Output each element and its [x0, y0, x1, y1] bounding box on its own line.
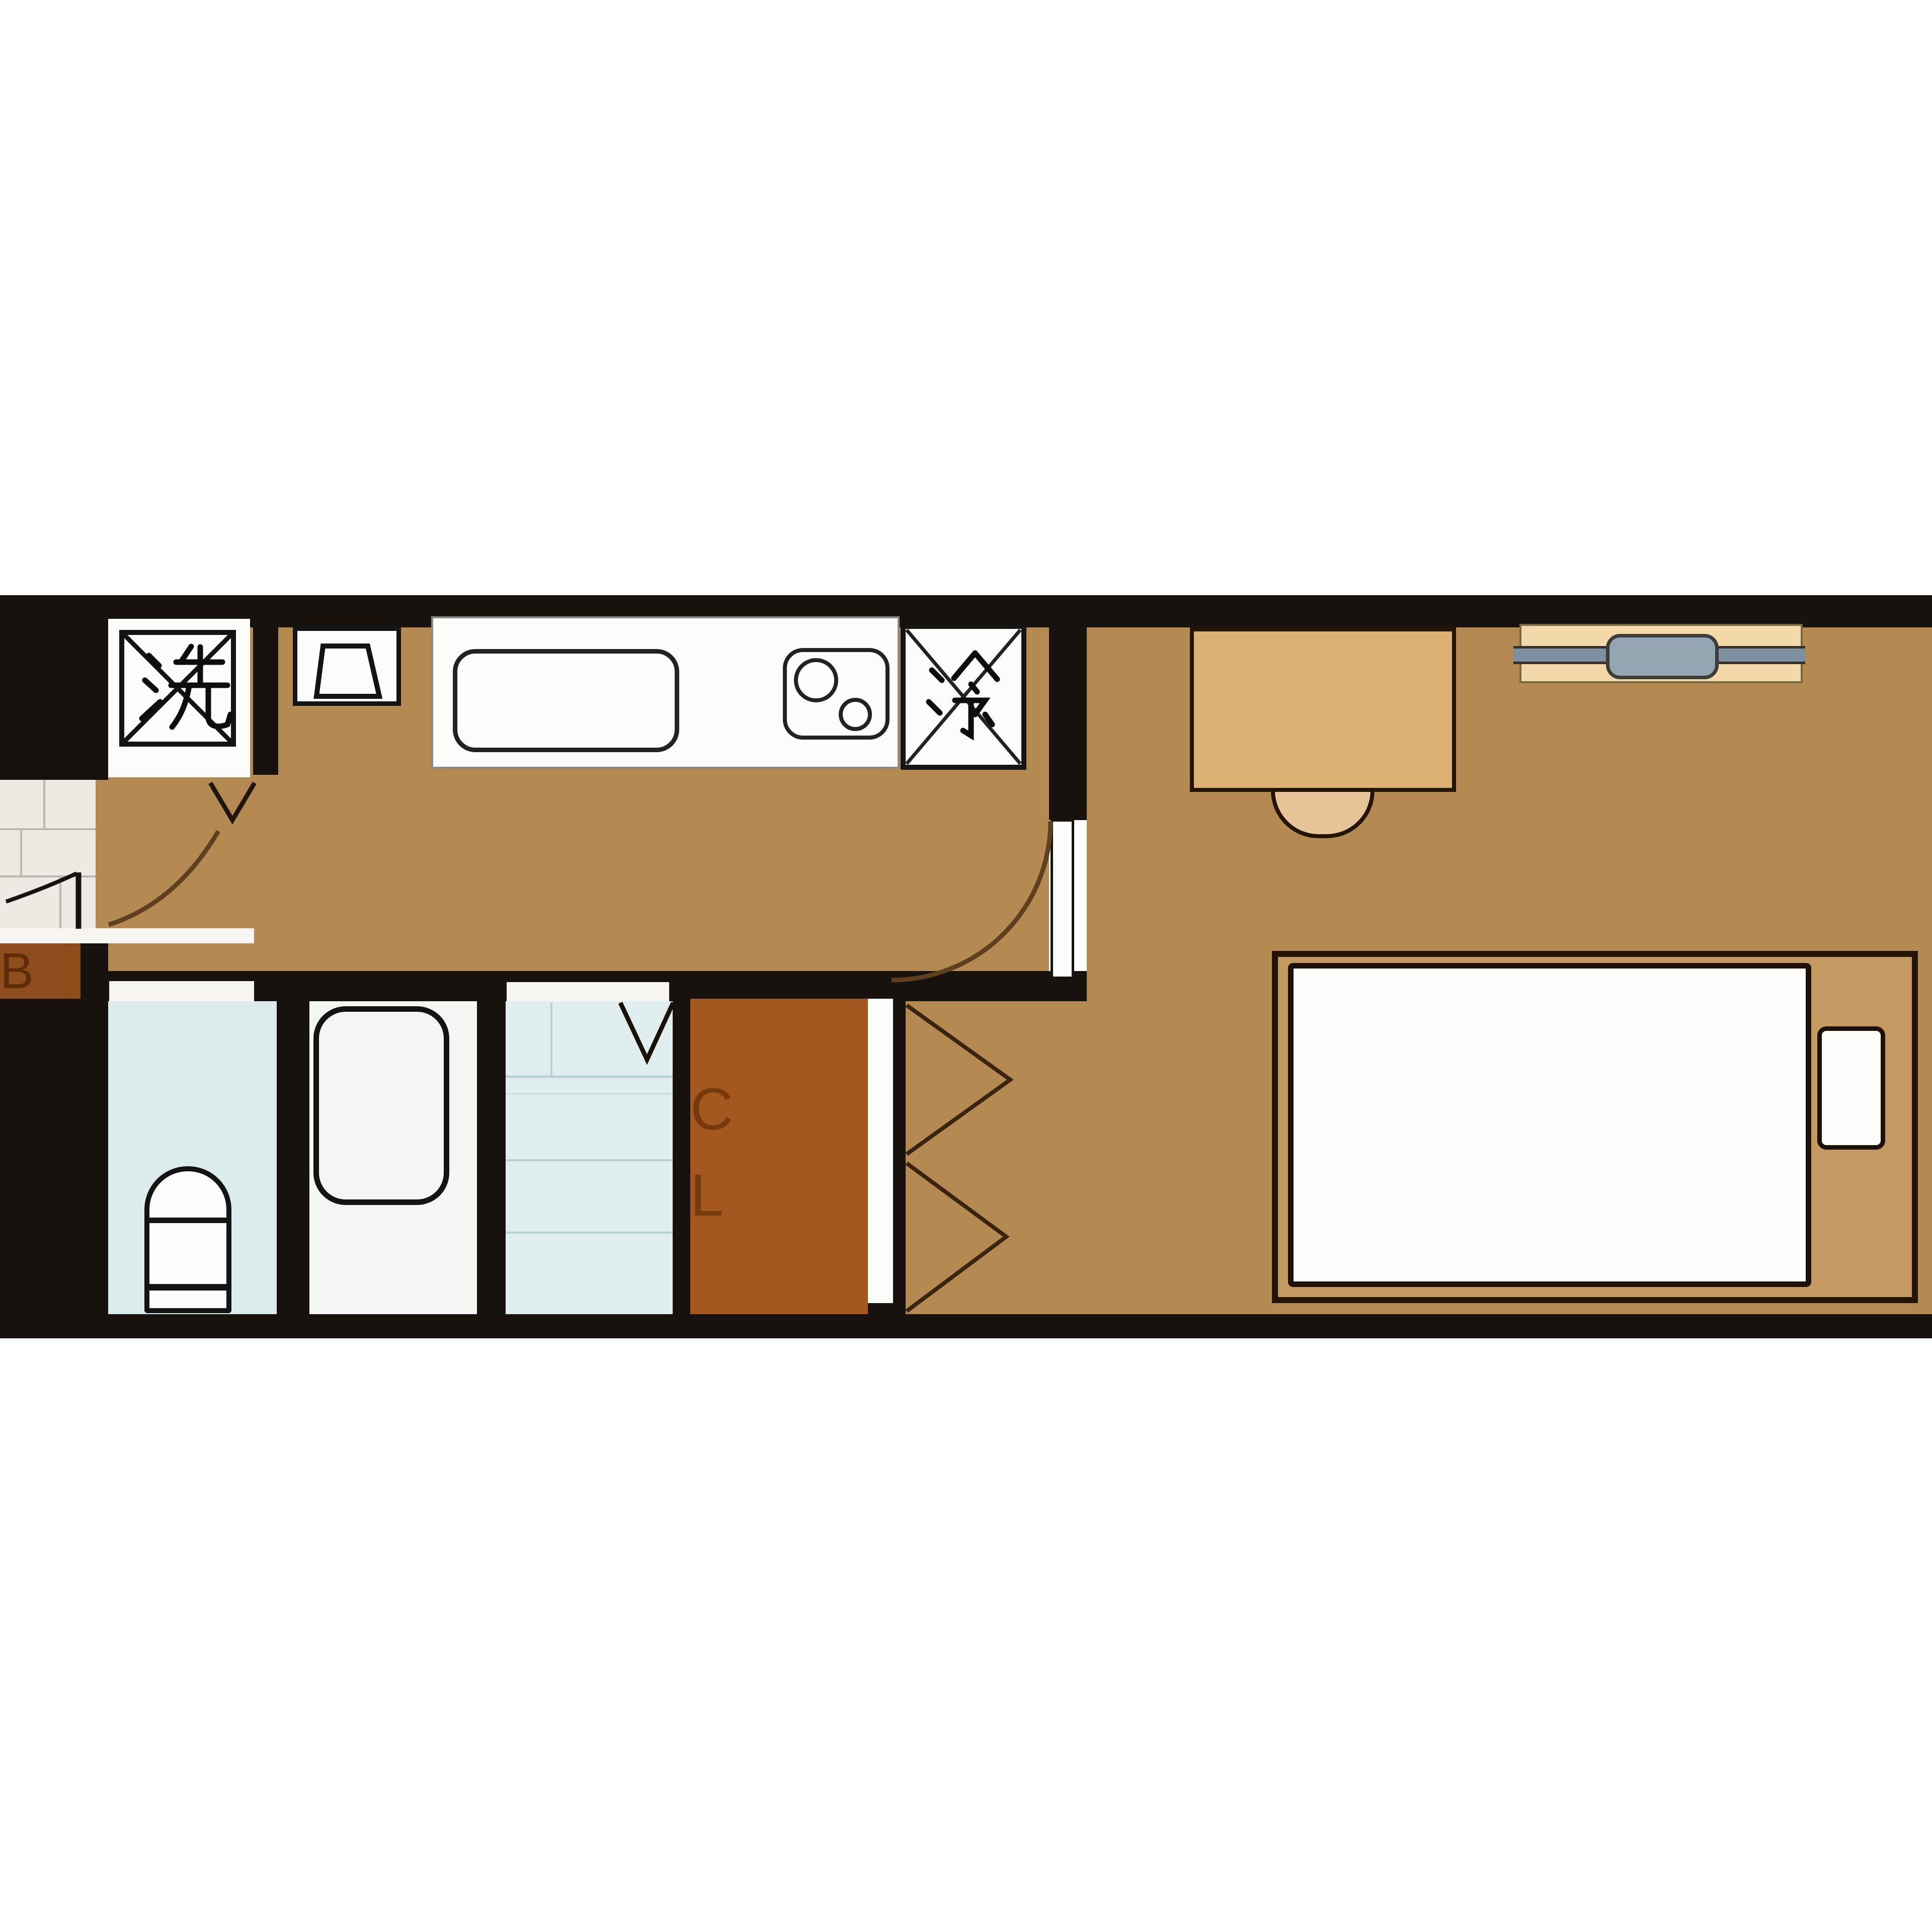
- closet-door: [868, 999, 893, 1303]
- floor-washroom: [506, 1001, 673, 1314]
- shoe-box-label: B: [0, 943, 34, 999]
- door-opening-toilet: [109, 981, 254, 1001]
- fridge-icon: [901, 624, 1026, 770]
- ac-capsule: [1606, 634, 1719, 679]
- stove-box: [293, 626, 401, 706]
- wall-living-divider: [1049, 595, 1087, 820]
- toilet-seat-line: [149, 1218, 226, 1223]
- wall-closet-right: [893, 971, 906, 1316]
- wall-bottom: [0, 1314, 1932, 1338]
- wall-bath-wash: [477, 971, 506, 1316]
- toilet: [144, 1166, 231, 1313]
- wall-washer-partition: [253, 595, 278, 775]
- desk: [1190, 627, 1456, 792]
- burner-plate: [783, 648, 890, 740]
- floor-entry-tile: [0, 780, 96, 928]
- closet-label-c: C: [690, 1067, 868, 1153]
- wall-top: [0, 595, 1932, 627]
- closet-label-l: L: [690, 1153, 868, 1239]
- mattress: [1288, 963, 1811, 1287]
- floor-bedroom-hall: [906, 1001, 1087, 1314]
- wall-closet-bottom: [868, 1303, 893, 1316]
- wall-wash-closet: [673, 971, 690, 1316]
- floorplan-canvas: B: [0, 0, 1932, 1932]
- entry-step: [0, 928, 254, 943]
- shoe-box: B: [0, 943, 80, 999]
- toilet-tank-line: [149, 1284, 226, 1291]
- closet-label: C L: [690, 1067, 868, 1239]
- door-opening-washroom: [507, 982, 669, 1001]
- door-leaf-living: [1051, 819, 1074, 979]
- washer-icon: [119, 630, 236, 747]
- bathtub: [313, 1006, 449, 1205]
- sink: [453, 649, 679, 752]
- pillow: [1817, 1026, 1885, 1150]
- wall-left-upper: [0, 595, 108, 780]
- wall-toilet-bath: [277, 971, 309, 1316]
